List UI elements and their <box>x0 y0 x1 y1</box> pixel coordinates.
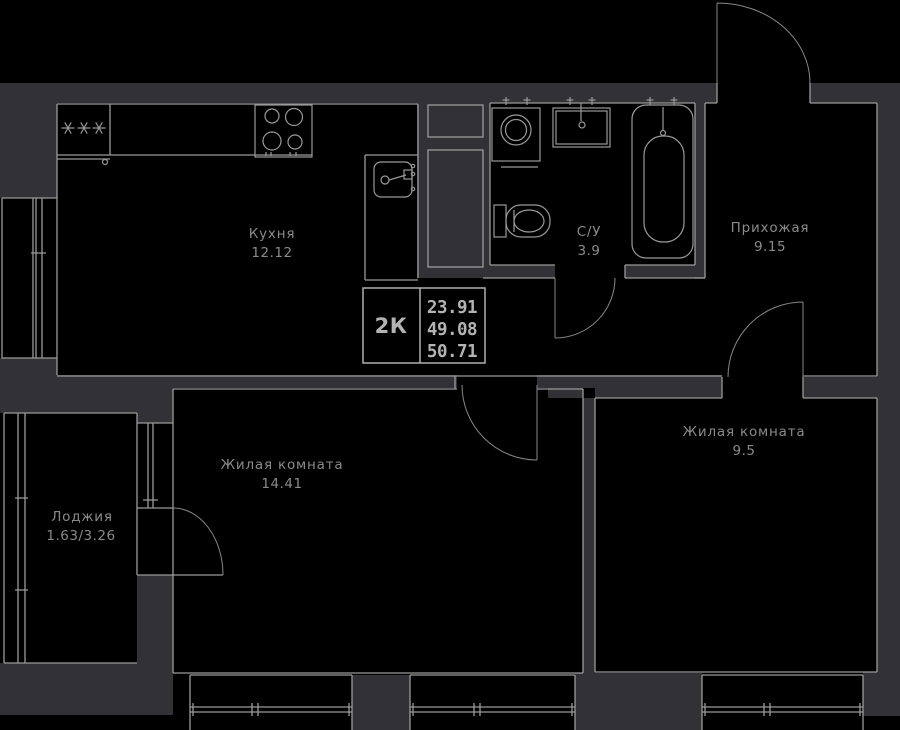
wall-loggia-bay-strip <box>137 575 173 715</box>
kitchen-sink-icon <box>374 162 415 197</box>
bathroom-area: 3.9 <box>578 243 601 259</box>
living2-door-arc <box>728 302 803 377</box>
balcony-door-arc <box>173 508 223 575</box>
bathroom-sink-icon <box>553 103 610 147</box>
wall-bath-bottom-left <box>483 265 555 278</box>
washing-machine-icon <box>492 108 540 167</box>
living1-area: 14.41 <box>261 476 302 492</box>
living2-area: 9.5 <box>733 443 756 459</box>
wall-bath-hall <box>695 103 705 278</box>
wall-kitchen-bottom <box>57 375 457 388</box>
kitchen-fixtures <box>62 105 415 197</box>
counter-knob-icon <box>103 160 108 165</box>
wall-bay-pillar-2 <box>575 673 702 730</box>
kitchen-area: 12.12 <box>251 245 292 261</box>
living2-outline <box>595 377 877 672</box>
walls-layer <box>0 83 900 730</box>
living1-label: Жилая комната <box>221 457 344 473</box>
wall-bay-pillar-1 <box>352 675 410 730</box>
bathroom-door-arc <box>555 278 615 338</box>
hallway-label: Прихожая <box>731 220 810 236</box>
window-bay-2 <box>410 675 575 730</box>
bathroom-label: С/У <box>577 224 602 240</box>
living1-door-arc <box>462 385 537 460</box>
stove-icon <box>255 105 312 157</box>
loggia-area: 1.63/3.26 <box>46 528 115 544</box>
entrance-door-arc <box>717 3 810 83</box>
wall-right-corner <box>863 672 900 716</box>
kitchen-label: Кухня <box>249 226 296 242</box>
living2-label: Жилая комната <box>683 424 806 440</box>
wall-bath-bottom-right <box>625 265 705 278</box>
hallway-area: 9.15 <box>754 239 786 255</box>
wall-hall-bottom <box>803 377 877 398</box>
wall-room-divider <box>583 398 595 675</box>
bathtub-icon <box>632 105 693 258</box>
fridge-icon <box>62 122 106 133</box>
loggia-label: Лоджия <box>51 509 113 525</box>
window-bay-3 <box>702 675 863 730</box>
loggia-room-window <box>137 423 223 575</box>
kitchen-outline <box>57 104 418 375</box>
plan-type-label: 2К <box>375 314 408 338</box>
floor-plan-svg: 2К 23.91 49.08 50.71 Кухня 12.12 С/У 3.9… <box>0 0 900 730</box>
wall-top-left <box>0 83 717 103</box>
toilet-icon <box>494 205 550 237</box>
wall-window-top-strip <box>137 413 173 423</box>
wall-left-pylon <box>0 83 57 198</box>
wall-mid-a <box>537 375 722 388</box>
wall-mid-b2 <box>595 388 722 398</box>
info-value-2: 49.08 <box>427 320 477 340</box>
window-bay-1 <box>190 675 352 730</box>
wall-left-lower <box>0 358 57 413</box>
living1-outline <box>173 389 583 673</box>
info-value-3: 50.71 <box>427 342 477 362</box>
info-value-1: 23.91 <box>427 298 477 318</box>
kitchen-window <box>2 198 57 358</box>
wall-right <box>877 83 900 716</box>
info-box: 2К 23.91 49.08 50.71 <box>363 288 485 363</box>
floor-plan: 2К 23.91 49.08 50.71 Кухня 12.12 С/У 3.9… <box>0 0 900 730</box>
